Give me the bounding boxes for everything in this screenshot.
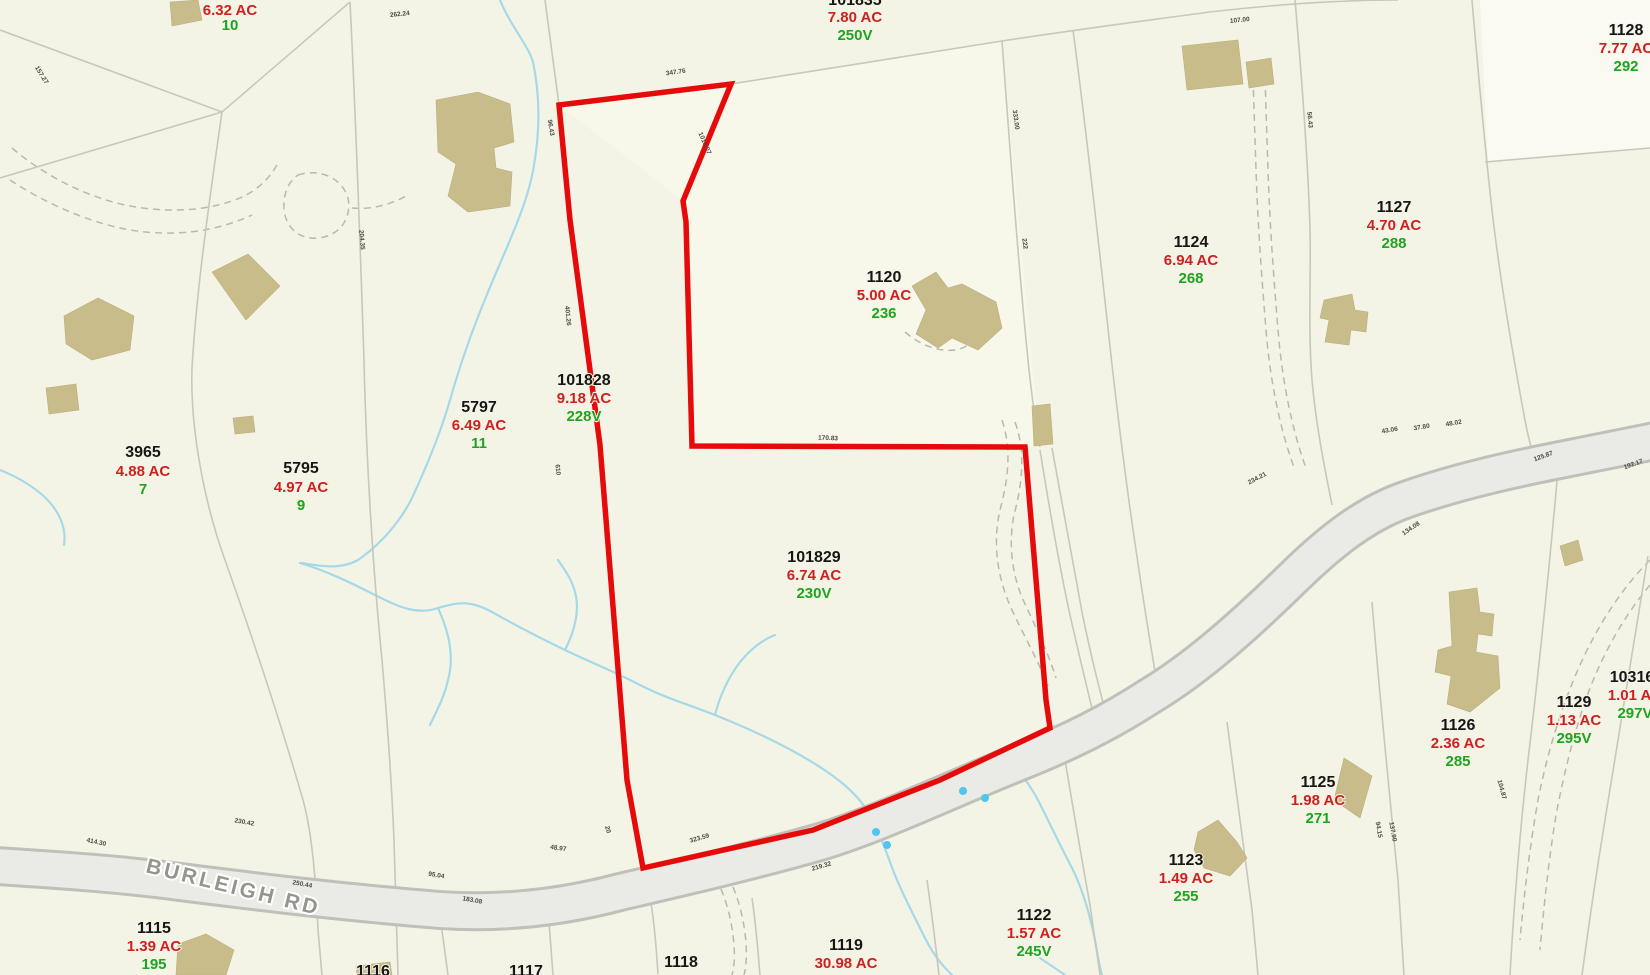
svg-text:10316: 10316 xyxy=(1610,669,1650,686)
svg-text:6.74 AC: 6.74 AC xyxy=(787,567,842,584)
svg-text:288: 288 xyxy=(1381,235,1406,252)
svg-text:1118: 1118 xyxy=(664,954,698,971)
svg-text:1124: 1124 xyxy=(1174,234,1209,251)
svg-text:6.94 AC: 6.94 AC xyxy=(1164,252,1219,269)
svg-text:2.36 AC: 2.36 AC xyxy=(1431,735,1486,752)
svg-text:271: 271 xyxy=(1305,810,1330,827)
svg-text:1119: 1119 xyxy=(829,937,863,954)
culvert-dot xyxy=(883,841,891,849)
dimension-label: 170.83 xyxy=(818,435,838,443)
svg-text:4.88 AC: 4.88 AC xyxy=(116,463,171,480)
svg-text:1.98 AC: 1.98 AC xyxy=(1291,792,1346,809)
building xyxy=(1246,58,1274,88)
svg-text:1123: 1123 xyxy=(1169,852,1204,869)
building xyxy=(1182,40,1243,90)
svg-text:101829: 101829 xyxy=(787,549,840,566)
svg-text:236: 236 xyxy=(871,305,896,322)
svg-text:6.49 AC: 6.49 AC xyxy=(452,417,507,434)
svg-text:4.97 AC: 4.97 AC xyxy=(274,479,329,496)
parcel-label-1116[interactable]: 1116 xyxy=(356,963,390,975)
svg-text:295V: 295V xyxy=(1556,730,1591,747)
svg-text:195: 195 xyxy=(141,956,166,973)
svg-text:9.18 AC: 9.18 AC xyxy=(557,390,612,407)
svg-text:228V: 228V xyxy=(566,408,601,425)
svg-text:1128: 1128 xyxy=(1609,22,1644,39)
svg-text:250V: 250V xyxy=(837,27,872,44)
svg-text:7: 7 xyxy=(139,481,147,498)
culvert-dot xyxy=(981,794,989,802)
svg-text:5.00 AC: 5.00 AC xyxy=(857,287,912,304)
svg-text:1126: 1126 xyxy=(1441,717,1476,734)
svg-text:5797: 5797 xyxy=(461,399,497,416)
svg-text:1127: 1127 xyxy=(1377,199,1412,216)
culvert-dot xyxy=(959,787,967,795)
svg-text:1115: 1115 xyxy=(137,920,171,937)
svg-text:4.70 AC: 4.70 AC xyxy=(1367,217,1422,234)
svg-text:245V: 245V xyxy=(1016,943,1051,960)
svg-text:268: 268 xyxy=(1178,270,1203,287)
dimension-label: 56.43 xyxy=(1305,111,1313,128)
svg-text:9: 9 xyxy=(297,497,305,514)
building xyxy=(233,416,255,434)
svg-text:10: 10 xyxy=(222,17,239,34)
svg-text:1.13 AC: 1.13 AC xyxy=(1547,712,1602,729)
svg-text:292: 292 xyxy=(1613,58,1638,75)
parcel-label-1117[interactable]: 1117 xyxy=(509,963,543,975)
svg-text:101835: 101835 xyxy=(828,0,881,9)
svg-text:7.80 AC: 7.80 AC xyxy=(828,9,883,26)
building xyxy=(1032,404,1053,446)
building xyxy=(46,384,79,414)
svg-text:285: 285 xyxy=(1445,753,1470,770)
svg-text:1.57 AC: 1.57 AC xyxy=(1007,925,1062,942)
svg-text:11: 11 xyxy=(471,435,487,452)
svg-text:30.98 AC: 30.98 AC xyxy=(815,955,878,972)
svg-text:1117: 1117 xyxy=(509,963,543,975)
svg-text:7.77 AC: 7.77 AC xyxy=(1599,40,1650,57)
culvert-dot xyxy=(872,828,880,836)
svg-text:1.39 AC: 1.39 AC xyxy=(127,938,182,955)
svg-text:1122: 1122 xyxy=(1017,907,1052,924)
svg-text:255: 255 xyxy=(1173,888,1198,905)
svg-text:1125: 1125 xyxy=(1301,774,1336,791)
svg-text:1116: 1116 xyxy=(356,963,390,975)
svg-text:1.01 AC: 1.01 AC xyxy=(1608,687,1650,704)
svg-text:3965: 3965 xyxy=(125,444,161,461)
svg-text:297V: 297V xyxy=(1617,705,1650,722)
parcel-map-canvas[interactable]: BURLEIGH RD 262.24 157.27 347.76 96.43 xyxy=(0,0,1650,975)
svg-text:1120: 1120 xyxy=(867,269,902,286)
svg-text:1129: 1129 xyxy=(1557,694,1592,711)
dimension-label: 610 xyxy=(553,464,561,476)
svg-text:5795: 5795 xyxy=(283,460,319,477)
svg-text:1.49 AC: 1.49 AC xyxy=(1159,870,1214,887)
svg-text:230V: 230V xyxy=(796,585,831,602)
svg-text:101828: 101828 xyxy=(557,372,610,389)
